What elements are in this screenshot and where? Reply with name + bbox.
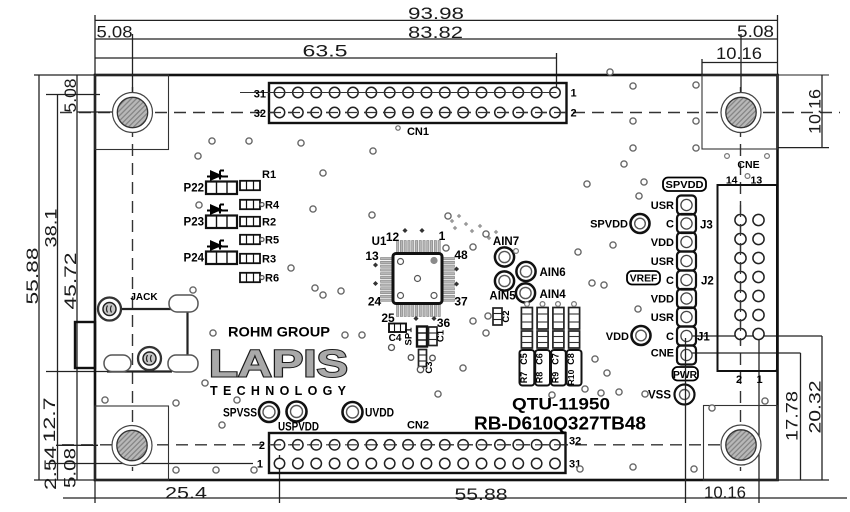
svg-text:R7: R7 <box>519 372 529 384</box>
svg-text:R8: R8 <box>535 372 545 384</box>
svg-text:R4: R4 <box>265 200 280 212</box>
svg-text:SP1: SP1 <box>404 327 415 346</box>
svg-text:C5: C5 <box>519 353 529 365</box>
svg-text:J3: J3 <box>700 220 713 232</box>
svg-text:VDD: VDD <box>651 294 674 306</box>
svg-text:USR: USR <box>651 200 674 212</box>
svg-text:93.98: 93.98 <box>408 4 464 23</box>
svg-text:C1: C1 <box>436 329 447 342</box>
svg-text:10.16: 10.16 <box>704 483 746 502</box>
svg-text:32: 32 <box>254 108 266 120</box>
svg-text:AIN5: AIN5 <box>489 291 516 303</box>
svg-text:LAPIS: LAPIS <box>209 344 348 386</box>
svg-text:C: C <box>666 219 674 231</box>
svg-text:C3: C3 <box>424 361 435 373</box>
svg-text:R2: R2 <box>262 217 276 229</box>
svg-text:31: 31 <box>254 89 266 101</box>
svg-text:C8: C8 <box>566 353 576 365</box>
svg-text:R3: R3 <box>262 254 276 266</box>
svg-text:C: C <box>666 331 674 343</box>
svg-text:5.08: 5.08 <box>737 22 774 41</box>
svg-text:C: C <box>666 275 674 287</box>
svg-text:10.16: 10.16 <box>716 44 762 63</box>
svg-text:U1: U1 <box>372 236 387 248</box>
svg-text:1: 1 <box>439 229 446 243</box>
svg-text:1: 1 <box>756 374 762 386</box>
svg-text:P23: P23 <box>184 217 204 229</box>
svg-text:38.1: 38.1 <box>42 209 61 248</box>
svg-text:R9: R9 <box>550 372 560 384</box>
svg-text:USR: USR <box>651 256 674 268</box>
svg-text:CNE: CNE <box>737 159 759 171</box>
svg-text:C2: C2 <box>501 310 512 322</box>
svg-text:C4: C4 <box>389 333 402 344</box>
svg-text:45.72: 45.72 <box>61 253 80 310</box>
svg-text:25.4: 25.4 <box>165 484 207 503</box>
svg-text:2: 2 <box>259 440 265 452</box>
svg-text:USPVDD: USPVDD <box>278 422 319 434</box>
svg-text:UVDD: UVDD <box>365 408 394 420</box>
svg-text:SPVDD: SPVDD <box>666 180 704 191</box>
svg-text:1: 1 <box>571 88 577 100</box>
svg-text:2: 2 <box>571 108 577 120</box>
svg-text:C6: C6 <box>535 353 545 365</box>
svg-text:CN1: CN1 <box>407 126 429 138</box>
svg-text:83.82: 83.82 <box>408 23 463 42</box>
svg-text:SPVDD: SPVDD <box>590 219 628 231</box>
svg-text:63.5: 63.5 <box>303 42 348 61</box>
svg-text:32: 32 <box>569 436 581 448</box>
svg-text:CN2: CN2 <box>407 420 429 432</box>
svg-text:J1: J1 <box>697 332 710 344</box>
svg-text:10.16: 10.16 <box>806 89 825 134</box>
svg-text:SPVSS: SPVSS <box>223 408 257 420</box>
svg-text:55.88: 55.88 <box>23 248 42 305</box>
svg-text:VDD: VDD <box>651 237 674 249</box>
svg-text:CNE: CNE <box>651 348 674 360</box>
svg-text:AIN6: AIN6 <box>540 267 566 279</box>
svg-text:2.54: 2.54 <box>41 446 60 490</box>
svg-text:R1: R1 <box>262 169 276 181</box>
svg-text:P24: P24 <box>184 253 205 265</box>
svg-text:AIN7: AIN7 <box>493 236 519 248</box>
svg-text:VDD: VDD <box>606 331 629 343</box>
svg-text:20.32: 20.32 <box>806 381 825 434</box>
svg-text:R5: R5 <box>265 235 279 247</box>
svg-text:13: 13 <box>751 175 763 187</box>
svg-text:5.08: 5.08 <box>61 448 80 488</box>
svg-text:VREF: VREF <box>630 274 657 285</box>
svg-text:R6: R6 <box>265 273 279 285</box>
svg-text:1: 1 <box>257 459 263 471</box>
svg-text:JACK: JACK <box>130 292 158 303</box>
svg-text:2: 2 <box>736 374 742 386</box>
svg-text:J2: J2 <box>701 276 714 288</box>
svg-text:RB-D610Q327TB48: RB-D610Q327TB48 <box>474 414 646 434</box>
svg-text:12: 12 <box>386 230 400 244</box>
svg-text:VSS: VSS <box>648 390 671 402</box>
svg-text:24: 24 <box>368 295 382 309</box>
svg-text:5.08: 5.08 <box>61 79 80 113</box>
svg-text:AIN4: AIN4 <box>540 289 567 301</box>
svg-text:C7: C7 <box>550 353 560 365</box>
svg-text:17.78: 17.78 <box>783 391 802 441</box>
svg-text:P22: P22 <box>184 183 204 195</box>
svg-text:13: 13 <box>365 249 379 263</box>
svg-text:36: 36 <box>437 316 451 330</box>
svg-text:48: 48 <box>454 248 468 262</box>
svg-text:37: 37 <box>454 295 468 309</box>
svg-text:QTU-11950: QTU-11950 <box>512 396 610 414</box>
svg-text:5.08: 5.08 <box>97 23 133 42</box>
svg-text:R10: R10 <box>566 369 576 385</box>
svg-text:14: 14 <box>726 175 738 187</box>
svg-text:USR: USR <box>651 312 674 324</box>
svg-text:55.88: 55.88 <box>455 485 508 504</box>
svg-text:12.7: 12.7 <box>40 398 59 443</box>
svg-text:ROHM GROUP: ROHM GROUP <box>228 324 330 340</box>
